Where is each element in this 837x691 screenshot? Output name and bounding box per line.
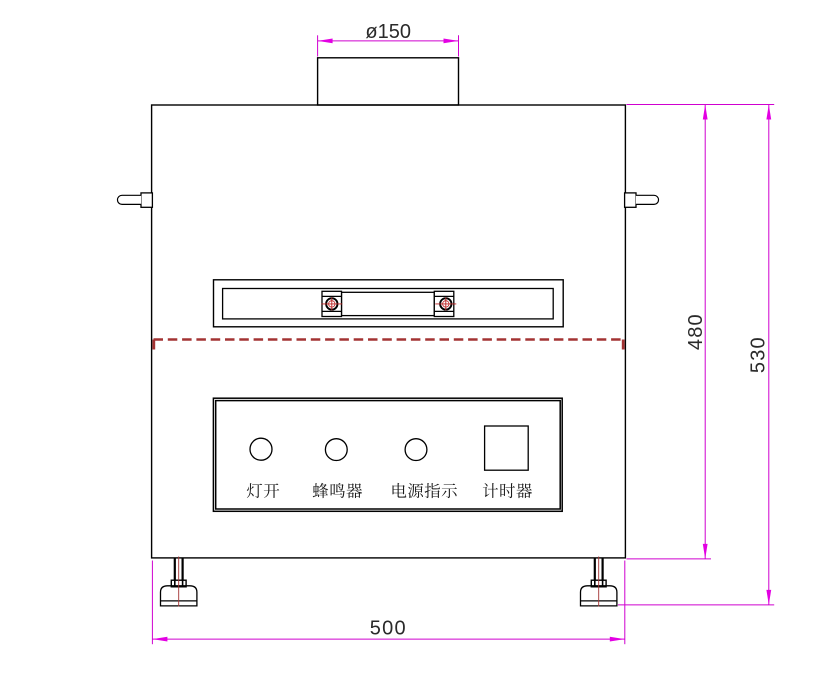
svg-text:530: 530	[748, 336, 770, 373]
svg-text:ø150: ø150	[365, 21, 411, 43]
svg-text:500: 500	[370, 618, 407, 640]
svg-text:480: 480	[685, 313, 707, 350]
